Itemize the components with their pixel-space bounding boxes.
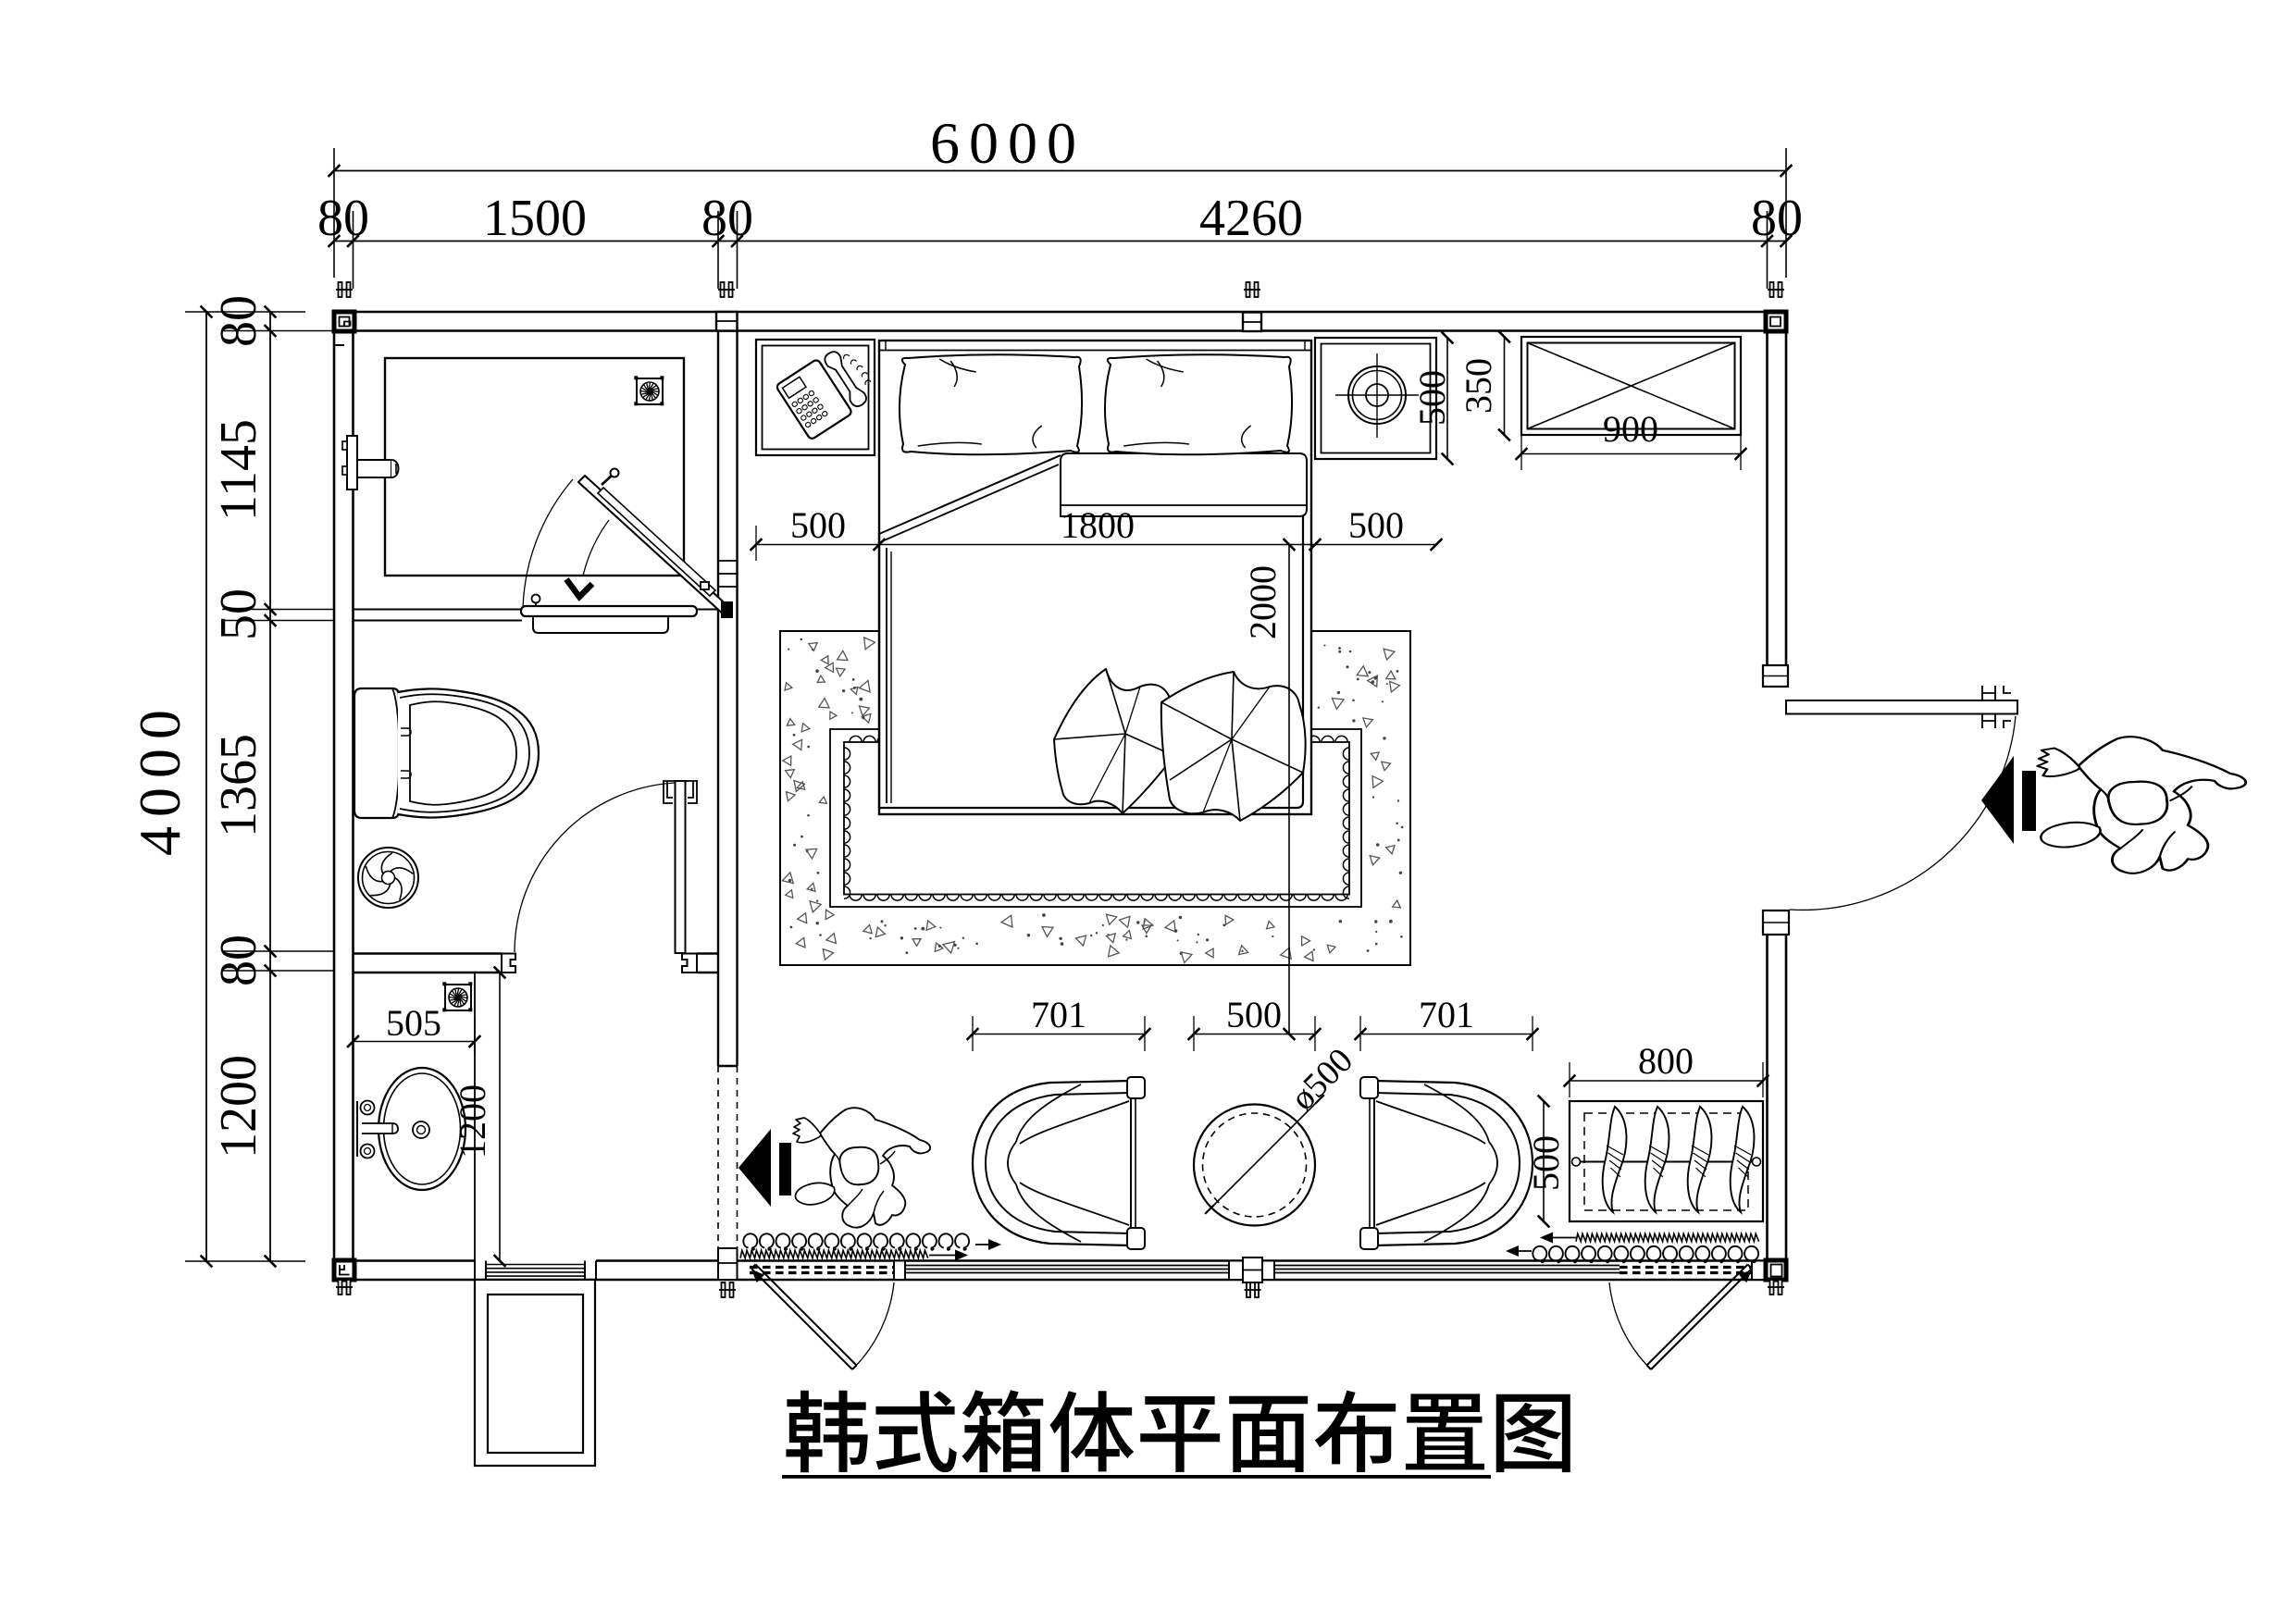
svg-text:80: 80 bbox=[1751, 190, 1803, 247]
svg-text:6000: 6000 bbox=[930, 110, 1086, 176]
svg-text:500: 500 bbox=[1525, 1135, 1567, 1191]
svg-text:900: 900 bbox=[1603, 408, 1658, 450]
svg-text:701: 701 bbox=[1031, 994, 1086, 1035]
svg-text:500: 500 bbox=[1226, 994, 1282, 1035]
svg-text:80: 80 bbox=[701, 190, 753, 247]
svg-text:800: 800 bbox=[1638, 1040, 1694, 1082]
svg-text:1200: 1200 bbox=[210, 1055, 267, 1158]
svg-text:1145: 1145 bbox=[210, 419, 267, 521]
svg-text:4000: 4000 bbox=[127, 700, 192, 856]
svg-text:350: 350 bbox=[1458, 358, 1499, 414]
svg-text:1365: 1365 bbox=[210, 734, 267, 837]
svg-text:80: 80 bbox=[317, 190, 369, 247]
svg-text:1200: 1200 bbox=[452, 1084, 493, 1158]
svg-text:80: 80 bbox=[210, 295, 267, 347]
svg-text:1800: 1800 bbox=[1061, 504, 1135, 546]
svg-text:500: 500 bbox=[790, 504, 846, 546]
svg-text:2000: 2000 bbox=[1242, 565, 1284, 639]
svg-text:4260: 4260 bbox=[1199, 190, 1303, 247]
svg-text:50: 50 bbox=[210, 588, 267, 640]
svg-text:500: 500 bbox=[1411, 370, 1453, 426]
svg-text:701: 701 bbox=[1419, 994, 1474, 1035]
svg-text:500: 500 bbox=[1348, 504, 1404, 546]
svg-text:80: 80 bbox=[210, 935, 267, 986]
svg-text:505: 505 bbox=[386, 1002, 441, 1044]
svg-text:1500: 1500 bbox=[483, 190, 587, 247]
